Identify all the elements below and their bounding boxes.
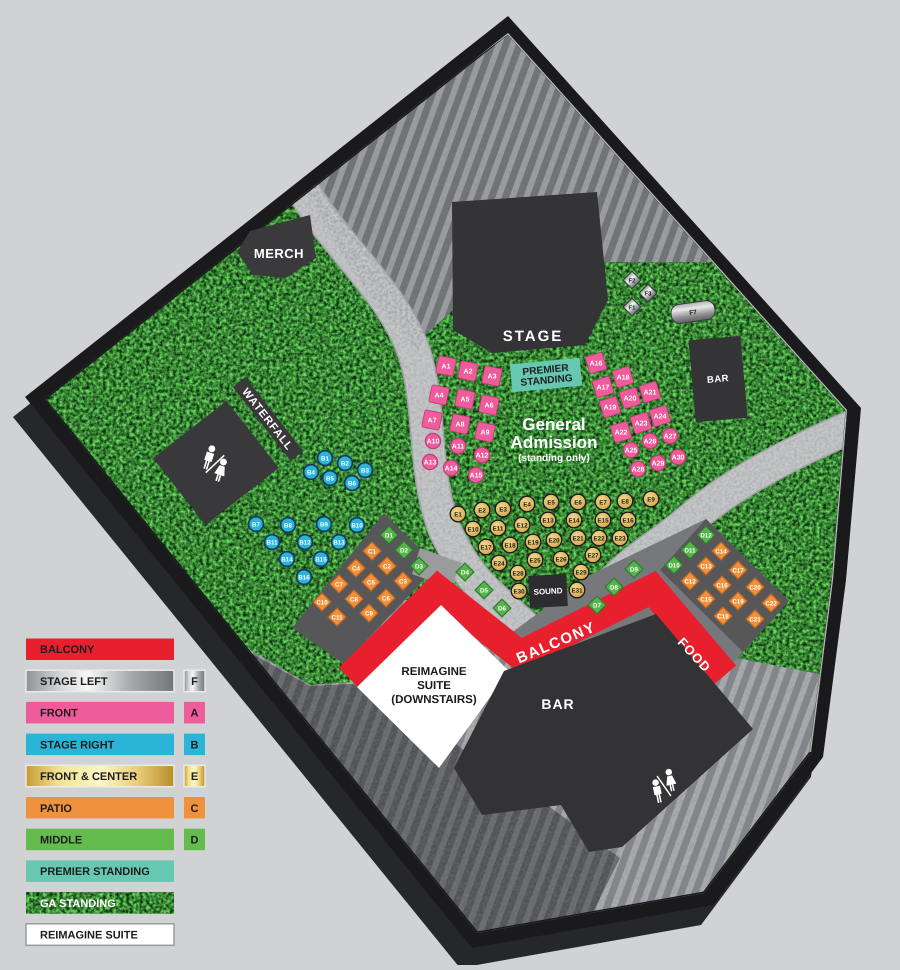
svg-text:A6: A6 [485, 403, 494, 410]
svg-text:C13: C13 [700, 563, 712, 570]
svg-text:E5: E5 [547, 500, 555, 507]
svg-text:A29: A29 [652, 461, 665, 468]
svg-text:A28: A28 [632, 467, 645, 474]
svg-text:C11: C11 [331, 614, 343, 621]
svg-text:D5: D5 [480, 587, 488, 594]
svg-text:A10: A10 [427, 439, 440, 446]
svg-text:E3: E3 [499, 507, 507, 514]
svg-text:BAR: BAR [707, 373, 730, 386]
svg-text:E15: E15 [597, 518, 609, 525]
svg-text:C21: C21 [749, 616, 761, 623]
svg-text:A19: A19 [604, 405, 617, 412]
svg-text:C20: C20 [749, 584, 761, 591]
svg-text:E: E [191, 771, 198, 783]
svg-text:C16: C16 [716, 582, 728, 589]
svg-text:B5: B5 [326, 476, 334, 483]
svg-text:D8: D8 [610, 584, 618, 591]
svg-text:B6: B6 [348, 481, 356, 488]
svg-text:MERCH: MERCH [254, 246, 304, 261]
svg-text:B3: B3 [361, 468, 369, 475]
svg-text:PATIO: PATIO [40, 803, 72, 815]
svg-text:FRONT & CENTER: FRONT & CENTER [40, 771, 137, 783]
svg-text:C17: C17 [732, 567, 744, 574]
svg-text:F1: F1 [628, 304, 636, 311]
svg-text:STAGE LEFT: STAGE LEFT [40, 676, 108, 688]
svg-text:A17: A17 [597, 385, 610, 392]
svg-text:E30: E30 [513, 589, 525, 596]
svg-text:E14: E14 [568, 518, 580, 525]
svg-text:B14: B14 [281, 557, 293, 564]
svg-text:A4: A4 [435, 393, 444, 400]
svg-text:B16: B16 [298, 575, 310, 582]
svg-text:E9: E9 [647, 497, 655, 504]
svg-text:D6: D6 [498, 605, 506, 612]
svg-text:D9: D9 [630, 566, 638, 573]
svg-text:C12: C12 [684, 578, 696, 585]
svg-text:E11: E11 [493, 526, 504, 533]
svg-text:C10: C10 [316, 599, 328, 606]
svg-text:C2: C2 [383, 563, 391, 570]
svg-text:E19: E19 [527, 540, 539, 547]
svg-text:F: F [191, 676, 198, 688]
svg-text:Admission: Admission [511, 433, 598, 452]
svg-text:A20: A20 [624, 396, 637, 403]
svg-text:E25: E25 [529, 558, 541, 565]
svg-text:C6: C6 [382, 595, 390, 602]
svg-text:E31: E31 [571, 588, 583, 595]
svg-text:A9: A9 [481, 430, 490, 437]
svg-text:FRONT: FRONT [40, 708, 78, 720]
svg-text:A11: A11 [452, 444, 465, 451]
svg-text:B7: B7 [252, 522, 260, 529]
svg-text:A21: A21 [644, 390, 657, 397]
svg-text:General: General [522, 415, 585, 434]
svg-text:E17: E17 [480, 545, 492, 552]
svg-text:B2: B2 [341, 461, 349, 468]
svg-text:C7: C7 [335, 581, 343, 588]
svg-text:SOUND: SOUND [533, 586, 563, 597]
svg-text:MIDDLE: MIDDLE [40, 835, 82, 847]
svg-text:C9: C9 [365, 610, 373, 617]
svg-text:B4: B4 [307, 470, 315, 477]
svg-text:A3: A3 [488, 374, 497, 381]
svg-text:E28: E28 [512, 571, 524, 578]
svg-text:A14: A14 [445, 466, 458, 473]
svg-text:D11: D11 [684, 547, 696, 554]
svg-text:D4: D4 [461, 569, 469, 576]
svg-text:STAGE RIGHT: STAGE RIGHT [40, 739, 115, 751]
svg-text:E16: E16 [622, 518, 634, 525]
svg-text:E1: E1 [454, 512, 462, 519]
svg-text:A24: A24 [654, 414, 667, 421]
svg-text:A18: A18 [617, 375, 630, 382]
svg-text:A: A [191, 708, 199, 720]
svg-text:C22: C22 [765, 600, 777, 607]
svg-text:E26: E26 [555, 557, 567, 564]
svg-text:E12: E12 [516, 523, 528, 530]
svg-text:B9: B9 [320, 522, 328, 529]
svg-text:PREMIER STANDING: PREMIER STANDING [40, 866, 150, 878]
svg-text:A2: A2 [464, 369, 473, 376]
svg-text:C3: C3 [399, 578, 407, 585]
svg-text:A27: A27 [664, 434, 677, 441]
svg-text:D12: D12 [700, 532, 712, 539]
svg-text:D: D [191, 835, 199, 847]
svg-text:E4: E4 [523, 502, 531, 509]
svg-text:BALCONY: BALCONY [40, 644, 95, 656]
svg-text:SUITE: SUITE [417, 680, 451, 692]
svg-text:C19: C19 [732, 598, 744, 605]
svg-text:E8: E8 [621, 499, 629, 506]
svg-text:E21: E21 [572, 536, 584, 543]
svg-text:A16: A16 [590, 361, 603, 368]
svg-text:E29: E29 [575, 570, 587, 577]
svg-text:B13: B13 [333, 540, 345, 547]
svg-text:A25: A25 [625, 448, 638, 455]
svg-text:A7: A7 [428, 418, 437, 425]
svg-text:E6: E6 [574, 500, 582, 507]
svg-text:A23: A23 [635, 421, 648, 428]
svg-text:E20: E20 [548, 538, 560, 545]
svg-text:(DOWNSTAIRS): (DOWNSTAIRS) [391, 694, 477, 706]
svg-text:C5: C5 [367, 579, 375, 586]
svg-text:B: B [191, 739, 199, 751]
svg-text:B10: B10 [351, 523, 363, 530]
svg-text:REIMAGINE SUITE: REIMAGINE SUITE [40, 930, 138, 942]
svg-text:E18: E18 [504, 543, 516, 550]
svg-text:GA STANDING: GA STANDING [40, 898, 116, 910]
svg-text:(standing only): (standing only) [518, 453, 590, 464]
svg-text:A30: A30 [672, 455, 685, 462]
svg-text:A5: A5 [461, 397, 470, 404]
svg-text:B15: B15 [315, 557, 327, 564]
svg-text:C18: C18 [717, 613, 729, 620]
svg-text:REIMAGINE: REIMAGINE [401, 666, 467, 678]
svg-text:A12: A12 [476, 453, 489, 460]
svg-text:A26: A26 [644, 439, 657, 446]
svg-text:E23: E23 [614, 536, 626, 543]
svg-text:C8: C8 [350, 596, 358, 603]
svg-text:A22: A22 [615, 430, 628, 437]
svg-text:E24: E24 [493, 561, 505, 568]
svg-text:E13: E13 [542, 518, 554, 525]
svg-text:C14: C14 [715, 548, 727, 555]
svg-text:F2: F2 [628, 277, 636, 284]
svg-text:A8: A8 [456, 422, 465, 429]
svg-text:D10: D10 [668, 562, 680, 569]
svg-text:A15: A15 [470, 473, 483, 480]
svg-text:C15: C15 [700, 596, 712, 603]
svg-text:E7: E7 [599, 500, 607, 507]
svg-text:C1: C1 [368, 548, 376, 555]
svg-text:D7: D7 [593, 602, 601, 609]
svg-text:STAGE: STAGE [503, 328, 564, 345]
svg-text:F7: F7 [689, 309, 698, 317]
svg-text:E22: E22 [593, 536, 605, 543]
svg-text:BAR: BAR [541, 696, 574, 712]
svg-text:A13: A13 [424, 460, 437, 467]
svg-text:B1: B1 [321, 456, 329, 463]
svg-text:F3: F3 [644, 290, 652, 297]
svg-text:C4: C4 [352, 565, 360, 572]
svg-text:D2: D2 [400, 547, 408, 554]
svg-text:E27: E27 [587, 553, 599, 560]
svg-text:A1: A1 [442, 364, 451, 371]
svg-text:C: C [191, 803, 199, 815]
svg-text:D3: D3 [415, 563, 423, 570]
svg-text:E2: E2 [478, 508, 486, 515]
svg-text:E10: E10 [467, 527, 479, 534]
svg-text:B12: B12 [299, 540, 311, 547]
svg-text:B8: B8 [284, 523, 292, 530]
svg-text:B11: B11 [266, 540, 278, 547]
svg-text:D1: D1 [385, 532, 393, 539]
